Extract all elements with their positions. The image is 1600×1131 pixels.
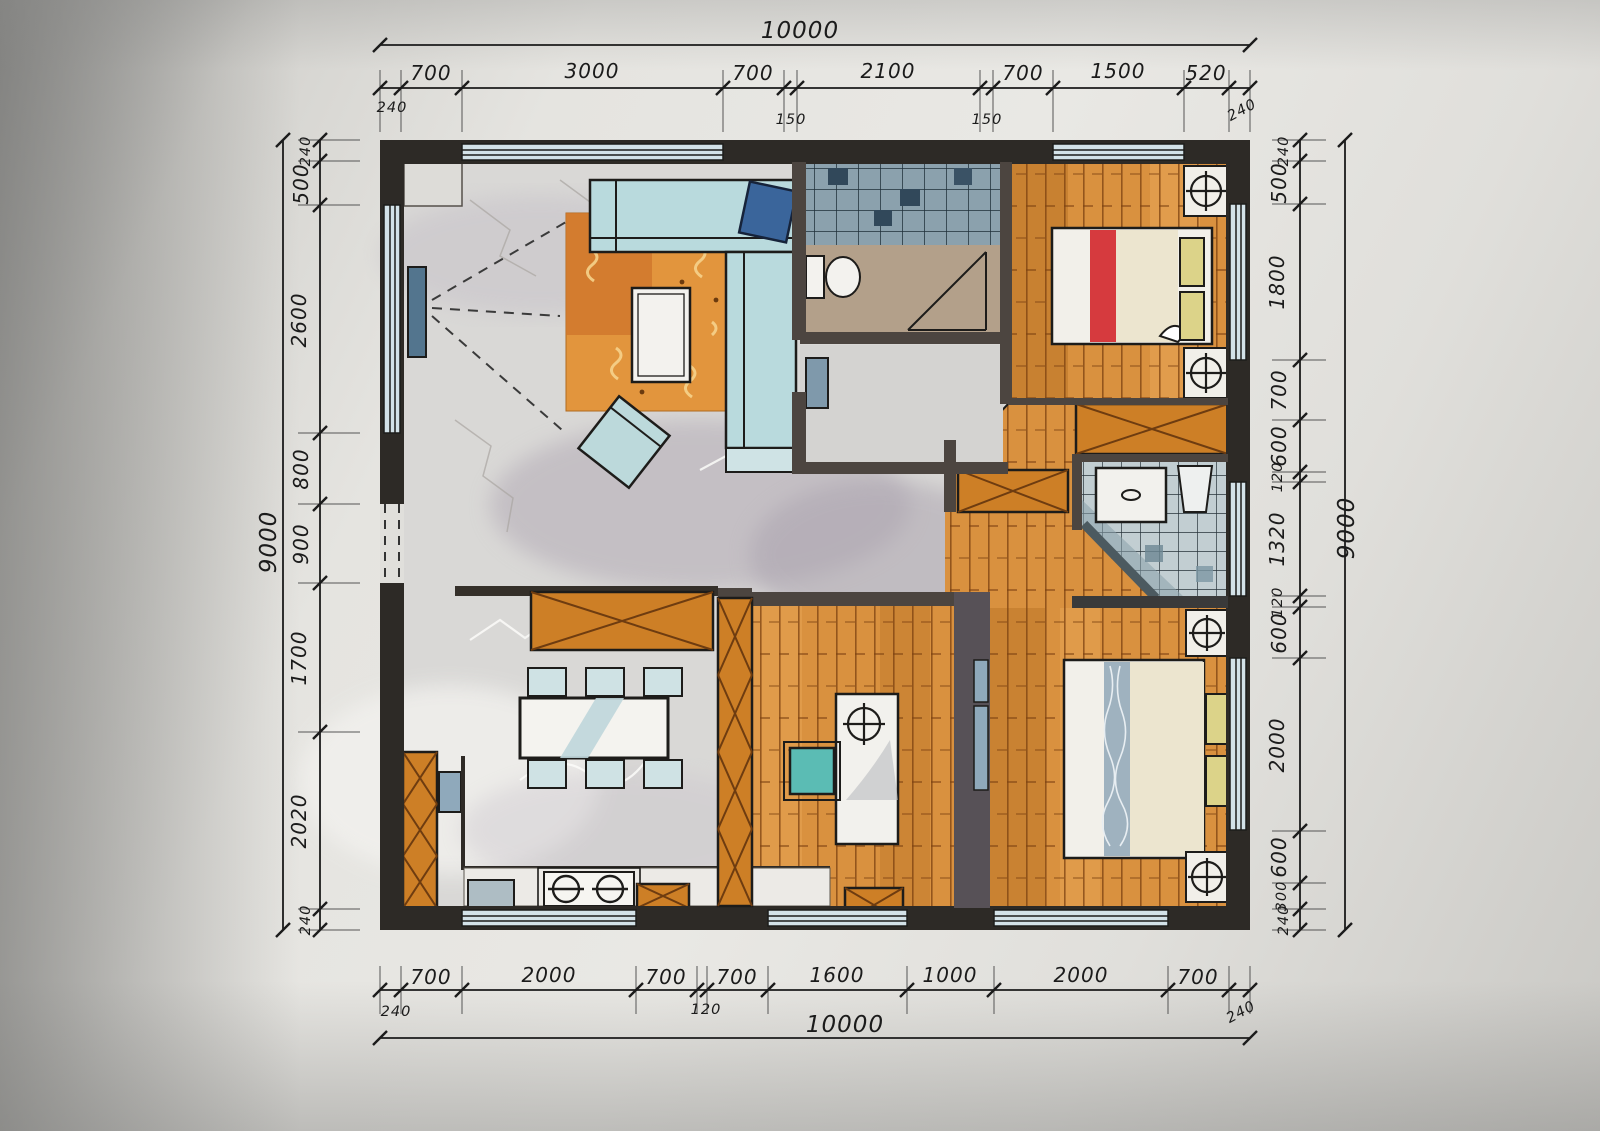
sliding-door-panel (974, 706, 988, 790)
dim-label: 520 (1185, 61, 1226, 85)
dim-label: 240 (1276, 136, 1292, 167)
dim-overall-bottom: 10000 (806, 1012, 884, 1038)
dim-label: 240 (377, 100, 408, 116)
toilet2 (1178, 466, 1212, 512)
floor-plan-drawing: 240 700 3000 700 150 2100 150 700 1500 5… (0, 0, 1600, 1131)
dim-label: 240 (298, 136, 314, 167)
dim-label: 700 (1002, 61, 1043, 85)
dim-label: 700 (716, 965, 757, 989)
dim-label: 1320 (1265, 512, 1289, 567)
sofa-end-table (726, 448, 796, 472)
dim-label: 700 (732, 61, 773, 85)
dim-label: 600 (1267, 425, 1291, 466)
window-bottom-kitchen (462, 910, 636, 926)
dim-label: 500 (289, 163, 313, 204)
chair (528, 760, 566, 788)
window-right-bedroom2 (1230, 658, 1246, 830)
chair (644, 668, 682, 696)
window-right-bedroom1 (1230, 204, 1246, 360)
mirror-cabinet (806, 358, 828, 408)
dim-overall-left: 9000 (256, 511, 282, 574)
wc-room-floor (800, 345, 1003, 462)
toilet-tank (806, 256, 824, 298)
window-bottom-bedroom2 (994, 910, 1168, 926)
chair (644, 760, 682, 788)
bed1-duvet (1116, 230, 1178, 342)
dim-label: 2600 (287, 293, 311, 348)
sofa-side-seat (726, 252, 796, 448)
dim-label: 1600 (810, 963, 865, 987)
chair (586, 668, 624, 696)
dim-label: 3000 (565, 59, 620, 83)
dimension-labels-bottom: 240 700 2000 700 120 700 1600 1000 2000 … (381, 963, 1259, 1038)
dim-label: 500 (1267, 162, 1291, 203)
dim-label: 1700 (287, 631, 311, 686)
stool (790, 748, 834, 794)
dim-label: 150 (972, 112, 1003, 128)
bed2-pillow (1206, 694, 1228, 744)
dim-label: 2000 (1265, 718, 1289, 773)
dim-label: 240 (381, 1004, 412, 1020)
dim-label: 800 (289, 448, 313, 489)
bed1-pillow (1180, 238, 1204, 286)
dim-label: 2020 (287, 794, 311, 849)
dim-label: 2100 (861, 59, 916, 83)
bed2-duvet (1130, 662, 1204, 856)
dim-label: 2000 (1054, 963, 1109, 987)
dim-label: 700 (1177, 965, 1218, 989)
dim-overall-right: 9000 (1334, 497, 1360, 560)
divider-wardrobe (718, 598, 752, 906)
dim-overall-top: 10000 (761, 18, 839, 44)
dimension-labels-top: 240 700 3000 700 150 2100 150 700 1500 5… (377, 18, 1260, 128)
dim-label: 120 (1270, 462, 1286, 493)
sink-board (468, 880, 514, 908)
sliding-door-panel (974, 660, 988, 702)
bed1-red-runner (1090, 230, 1116, 342)
dim-label: 700 (410, 61, 451, 85)
window-left (384, 205, 400, 433)
dim-label: 150 (776, 112, 807, 128)
bed1-pillow (1180, 292, 1204, 340)
dim-label: 120 (691, 1002, 722, 1018)
entry-door (380, 504, 404, 583)
dim-label: 240 (298, 905, 314, 936)
sofa-pillow (739, 182, 797, 243)
dim-label: 700 (645, 965, 686, 989)
tv-screen (408, 267, 426, 357)
photo-of-floor-plan: 240 700 3000 700 150 2100 150 700 1500 5… (0, 0, 1600, 1131)
dim-label: 600 (1267, 836, 1291, 877)
window-top-living (462, 144, 723, 160)
window-top-bedroom1 (1053, 144, 1184, 160)
coffee-table (632, 288, 690, 382)
bed2-pillow (1206, 756, 1228, 806)
dim-label: 1000 (923, 963, 978, 987)
toilet-bowl (826, 257, 860, 297)
window-right-bathroom2 (1230, 482, 1246, 596)
dimension-labels-left: 240 500 2600 800 900 1700 2020 240 9000 (256, 136, 314, 936)
window-bottom-study (768, 910, 907, 926)
dim-label: 900 (289, 523, 313, 564)
dim-label: 700 (410, 965, 451, 989)
entry-cabinet (404, 162, 462, 206)
dim-label: 600 (1267, 612, 1291, 653)
dim-label: 240 (1276, 905, 1292, 936)
dim-label: 1800 (1265, 255, 1289, 310)
dim-label: 1500 (1091, 59, 1146, 83)
dim-label: 700 (1267, 369, 1291, 410)
chair (586, 760, 624, 788)
vanity (1096, 468, 1166, 522)
bathroom1-floor (800, 162, 1003, 462)
kitchen-appliance (439, 772, 461, 812)
chair (528, 668, 566, 696)
dim-label: 240 (1225, 96, 1260, 125)
dim-label: 2000 (522, 963, 577, 987)
